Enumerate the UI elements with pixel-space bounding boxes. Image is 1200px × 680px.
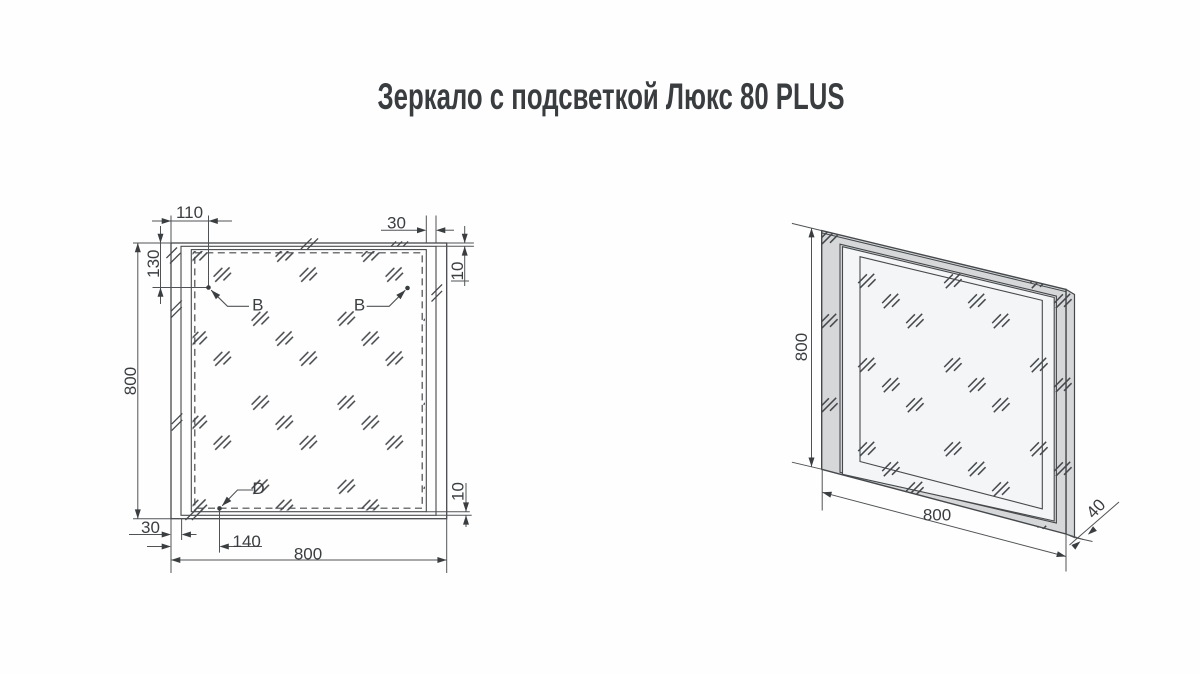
svg-text:800: 800 bbox=[923, 506, 951, 525]
svg-text:800: 800 bbox=[121, 367, 140, 395]
svg-text:10: 10 bbox=[449, 482, 468, 501]
svg-text:Зеркало с подсветкой Люкс 80 P: Зеркало с подсветкой Люкс 80 PLUS bbox=[378, 76, 845, 117]
svg-text:110: 110 bbox=[176, 203, 203, 222]
svg-text:800: 800 bbox=[792, 333, 811, 361]
svg-text:D: D bbox=[252, 479, 264, 498]
svg-text:140: 140 bbox=[233, 532, 261, 551]
svg-text:30: 30 bbox=[387, 214, 406, 233]
svg-text:10: 10 bbox=[448, 262, 467, 281]
svg-text:800: 800 bbox=[294, 544, 322, 563]
svg-text:B: B bbox=[354, 296, 365, 315]
svg-text:130: 130 bbox=[144, 250, 163, 278]
svg-text:B: B bbox=[252, 296, 263, 315]
svg-text:30: 30 bbox=[141, 518, 160, 537]
